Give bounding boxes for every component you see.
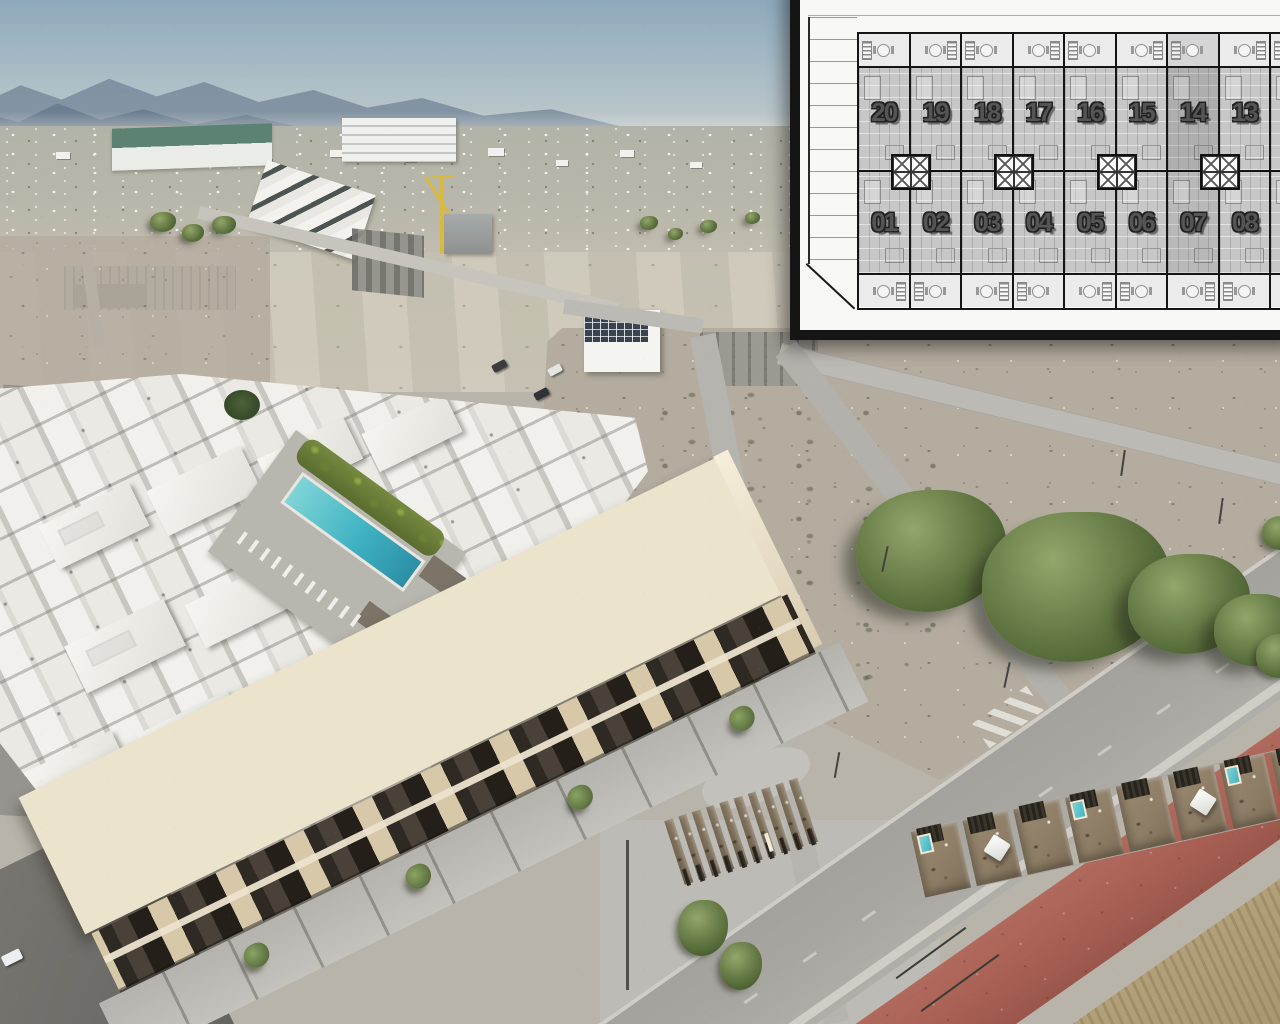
distant-building [620, 150, 634, 157]
plan-unit-cell-top [1271, 68, 1280, 172]
elevator-shaft-icon [1200, 154, 1240, 190]
dining-table-icon [1032, 44, 1045, 57]
plan-unit-column [1271, 34, 1280, 308]
plan-terrace-cell [1220, 34, 1270, 68]
plan-boundary-chamfer [806, 263, 856, 309]
elevator-shaft-icon [891, 154, 931, 190]
plan-terrace-cell [911, 275, 961, 307]
unit-number: 03 [974, 207, 999, 238]
tower-crane [440, 176, 443, 254]
stairs-icon [1050, 41, 1060, 60]
unit-number: 13 [1232, 97, 1257, 128]
dining-table-icon [929, 285, 942, 298]
stairs-icon [862, 41, 872, 60]
unit-number: 02 [923, 207, 948, 238]
unit-number: 07 [1180, 207, 1205, 238]
distant-building [56, 152, 70, 159]
plan-terrace-cell [859, 275, 909, 307]
plan-boundary-line [808, 17, 810, 264]
plan-terrace-cell [1220, 275, 1270, 307]
stairs-icon [999, 282, 1009, 301]
stairs-icon [896, 282, 906, 301]
pergola-icon [793, 832, 803, 850]
distant-building [690, 162, 702, 168]
umbrella-icon [984, 834, 1012, 862]
aerial-development-photo: 20011902180317041605150614071308 [0, 0, 1280, 1024]
plan-terrace-cell [1065, 275, 1115, 307]
pergola-icon [695, 864, 705, 882]
stairs-icon [1102, 282, 1112, 301]
dining-table-icon [980, 44, 993, 57]
unit-number: 08 [1232, 207, 1257, 238]
stairs-icon [1171, 41, 1181, 60]
tower-crane-arm [432, 175, 454, 178]
dining-table-icon [1083, 44, 1096, 57]
plan-terrace-cell [962, 275, 1012, 307]
stairs-icon [1205, 282, 1215, 301]
street-lamp [626, 840, 629, 990]
stairs-icon [1120, 282, 1130, 301]
plan-terrace-cell [962, 34, 1012, 68]
umbrella-icon [1189, 789, 1217, 817]
plan-terrace-cell [1065, 34, 1115, 68]
plan-terrace-cell [911, 34, 961, 68]
roof-terrace [1116, 777, 1176, 852]
dining-table-icon [980, 285, 993, 298]
stairs-icon [914, 282, 924, 301]
distant-building [488, 148, 504, 156]
plan-boundary-line [808, 15, 1280, 16]
stairs-icon [965, 41, 975, 60]
roof-terrace [1219, 754, 1279, 829]
dining-table-icon [929, 44, 942, 57]
floor-plan-inset: 20011902180317041605150614071308 [790, 0, 1280, 340]
unit-number: 06 [1129, 207, 1154, 238]
plan-terrace-cell [1117, 34, 1167, 68]
gray-building [444, 214, 492, 254]
plan-terrace-cell [1168, 34, 1218, 68]
plan-terrace-cell [1014, 275, 1064, 307]
dining-table-icon [1238, 44, 1251, 57]
pergola-icon [1121, 778, 1150, 801]
plan-terrace-cell [1271, 275, 1280, 307]
stairs-icon [1274, 41, 1280, 60]
plan-terrace-cell [1168, 275, 1218, 307]
roof-terrace [1013, 799, 1073, 874]
dining-table-icon [1032, 285, 1045, 298]
plan-terrace-cell [1271, 34, 1280, 68]
dining-table-icon [1186, 44, 1199, 57]
dining-table-icon [1186, 285, 1199, 298]
pergola-icon [1172, 767, 1201, 790]
floor-plan-grid: 20011902180317041605150614071308 [857, 32, 1280, 310]
floor-plan-sheet: 20011902180317041605150614071308 [800, 0, 1280, 330]
elevator-shaft-icon [1097, 154, 1137, 190]
pergola-icon [751, 846, 761, 864]
unit-number: 15 [1129, 97, 1154, 128]
unit-number: 18 [974, 97, 999, 128]
street-lamp [834, 752, 840, 778]
pergola-icon [1018, 801, 1047, 824]
pergola-icon [709, 859, 719, 877]
pergola-icon [967, 812, 996, 835]
street-tree [240, 939, 274, 972]
dirt-field [0, 236, 270, 388]
roof-terrace [1065, 788, 1125, 863]
unit-number: 01 [871, 207, 896, 238]
stairs-icon [1068, 41, 1078, 60]
plan-terrace-cell [1014, 34, 1064, 68]
street-tree [725, 702, 759, 735]
unit-number: 05 [1077, 207, 1102, 238]
stairs-icon [1223, 282, 1233, 301]
street-tree [402, 860, 436, 893]
dining-table-icon [1135, 285, 1148, 298]
plan-terrace-cell [859, 34, 909, 68]
dining-table-icon [1135, 44, 1148, 57]
stairs-icon [1256, 41, 1266, 60]
pergola-icon [723, 855, 733, 873]
unit-number: 17 [1026, 97, 1051, 128]
warehouse-building [112, 123, 272, 171]
unit-number: 16 [1077, 97, 1102, 128]
unit-number: 14 [1180, 97, 1205, 128]
roof-terrace [1167, 765, 1227, 840]
dining-table-icon [1238, 285, 1251, 298]
dining-table-icon [1083, 285, 1096, 298]
stairs-icon [947, 41, 957, 60]
street-tree [563, 781, 597, 814]
dining-table-icon [877, 44, 890, 57]
stairs-icon [1153, 41, 1163, 60]
elevator-shaft-icon [994, 154, 1034, 190]
plan-site-lines [809, 17, 857, 264]
pergola-icon [779, 837, 789, 855]
distant-building [556, 160, 568, 166]
plan-unit-cell-bottom [1271, 172, 1280, 275]
roof-terrace [962, 811, 1022, 886]
dining-table-icon [877, 285, 890, 298]
unit-number: 04 [1026, 207, 1051, 238]
unit-number: 20 [871, 97, 896, 128]
palm-tree [224, 390, 260, 420]
stairs-icon [1017, 282, 1027, 301]
office-building [342, 118, 456, 162]
pergola-icon [737, 850, 747, 868]
plan-terrace-cell [1117, 275, 1167, 307]
unit-number: 19 [923, 97, 948, 128]
